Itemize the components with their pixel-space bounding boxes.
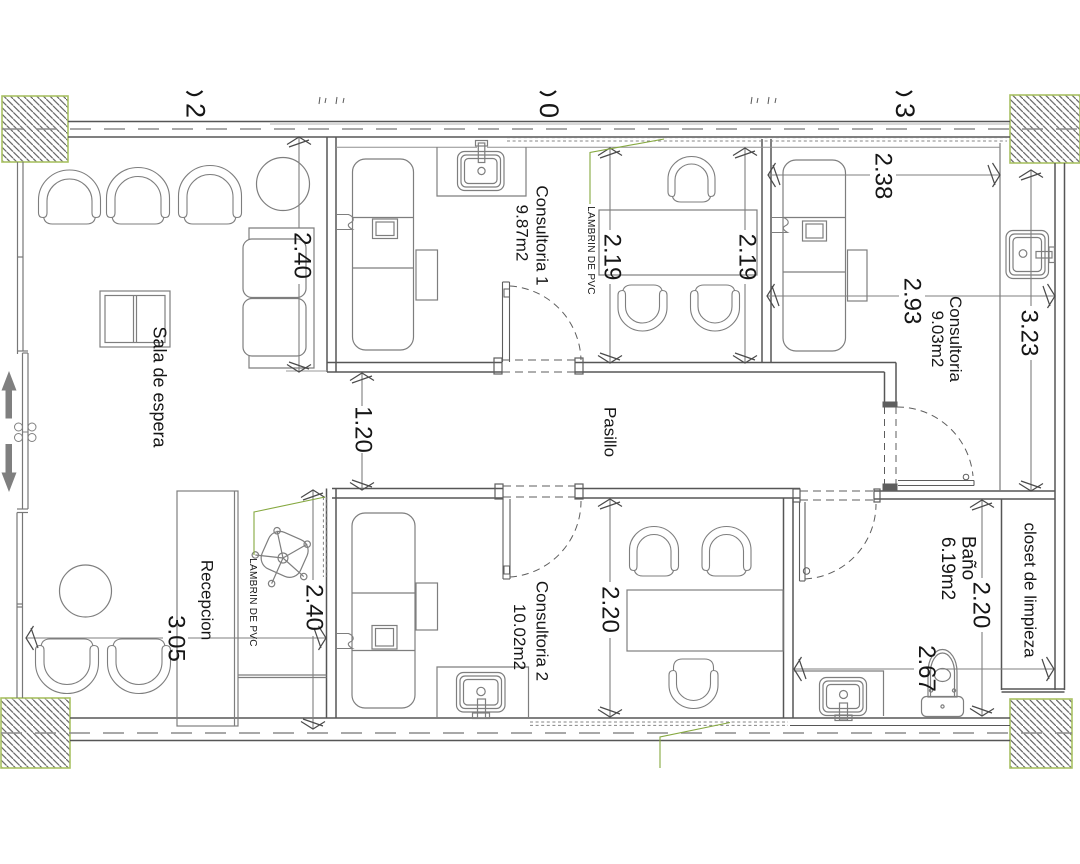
svg-text:2.67: 2.67 [913,645,940,692]
svg-text:LAMBRIN DE PVC: LAMBRIN DE PVC [585,206,596,295]
svg-text:9.87m2: 9.87m2 [513,205,532,262]
svg-text:2.19: 2.19 [599,234,626,281]
svg-text:3: 3 [890,103,920,118]
svg-text:10.02m2: 10.02m2 [510,604,529,670]
svg-text:2.20: 2.20 [968,582,995,629]
svg-text:2.20: 2.20 [597,586,624,633]
svg-text:2.38: 2.38 [870,153,897,200]
svg-text:Sala de espera: Sala de espera [150,326,170,448]
svg-text:Pasillo: Pasillo [601,407,620,457]
svg-text:2.19: 2.19 [734,234,761,281]
svg-text:Consultoria: Consultoria [946,296,965,383]
svg-text:3.05: 3.05 [163,615,190,662]
svg-text:9.03m2: 9.03m2 [928,311,947,368]
svg-text:Consultoria 2: Consultoria 2 [533,581,552,681]
svg-text:2.40: 2.40 [301,584,328,631]
svg-text:2.93: 2.93 [899,278,926,325]
svg-text:Baño: Baño [958,536,979,580]
svg-text:2.40: 2.40 [289,232,316,279]
svg-text:3.23: 3.23 [1016,310,1043,357]
svg-text:closet de limpieza: closet de limpieza [1021,522,1040,658]
svg-text:Consultoria 1: Consultoria 1 [533,185,552,285]
svg-text:Recepcion: Recepcion [198,560,217,640]
svg-text:0: 0 [534,103,564,118]
svg-text:2: 2 [181,103,211,118]
svg-text:LAMBRIN DE PVC: LAMBRIN DE PVC [247,558,258,647]
svg-text:6.19m2: 6.19m2 [937,537,958,600]
svg-text:1.20: 1.20 [350,406,377,453]
